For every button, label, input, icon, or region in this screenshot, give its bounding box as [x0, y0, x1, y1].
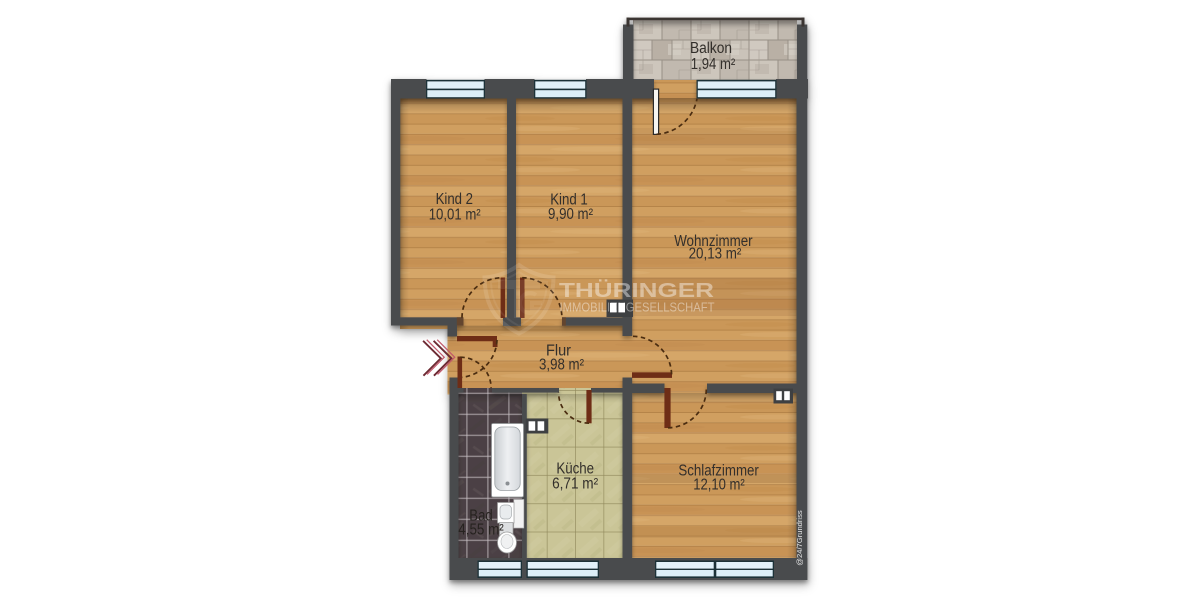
svg-text:9,90 m²: 9,90 m² [548, 206, 593, 223]
svg-text:10,01 m²: 10,01 m² [429, 206, 481, 223]
svg-text:1,94 m²: 1,94 m² [691, 56, 736, 73]
svg-text:12,10 m²: 12,10 m² [693, 477, 745, 494]
svg-text:6,71 m²: 6,71 m² [552, 475, 598, 492]
svg-text:3,98 m²: 3,98 m² [539, 357, 584, 374]
svg-text:20,13 m²: 20,13 m² [689, 246, 742, 263]
svg-text:4,55 m²: 4,55 m² [458, 522, 504, 539]
svg-text:@24/7Grundriss: @24/7Grundriss [795, 510, 804, 566]
svg-text:IMMOBILIENGESELLSCHAFT: IMMOBILIENGESELLSCHAFT [560, 300, 715, 315]
svg-text:Balkon: Balkon [690, 40, 732, 57]
